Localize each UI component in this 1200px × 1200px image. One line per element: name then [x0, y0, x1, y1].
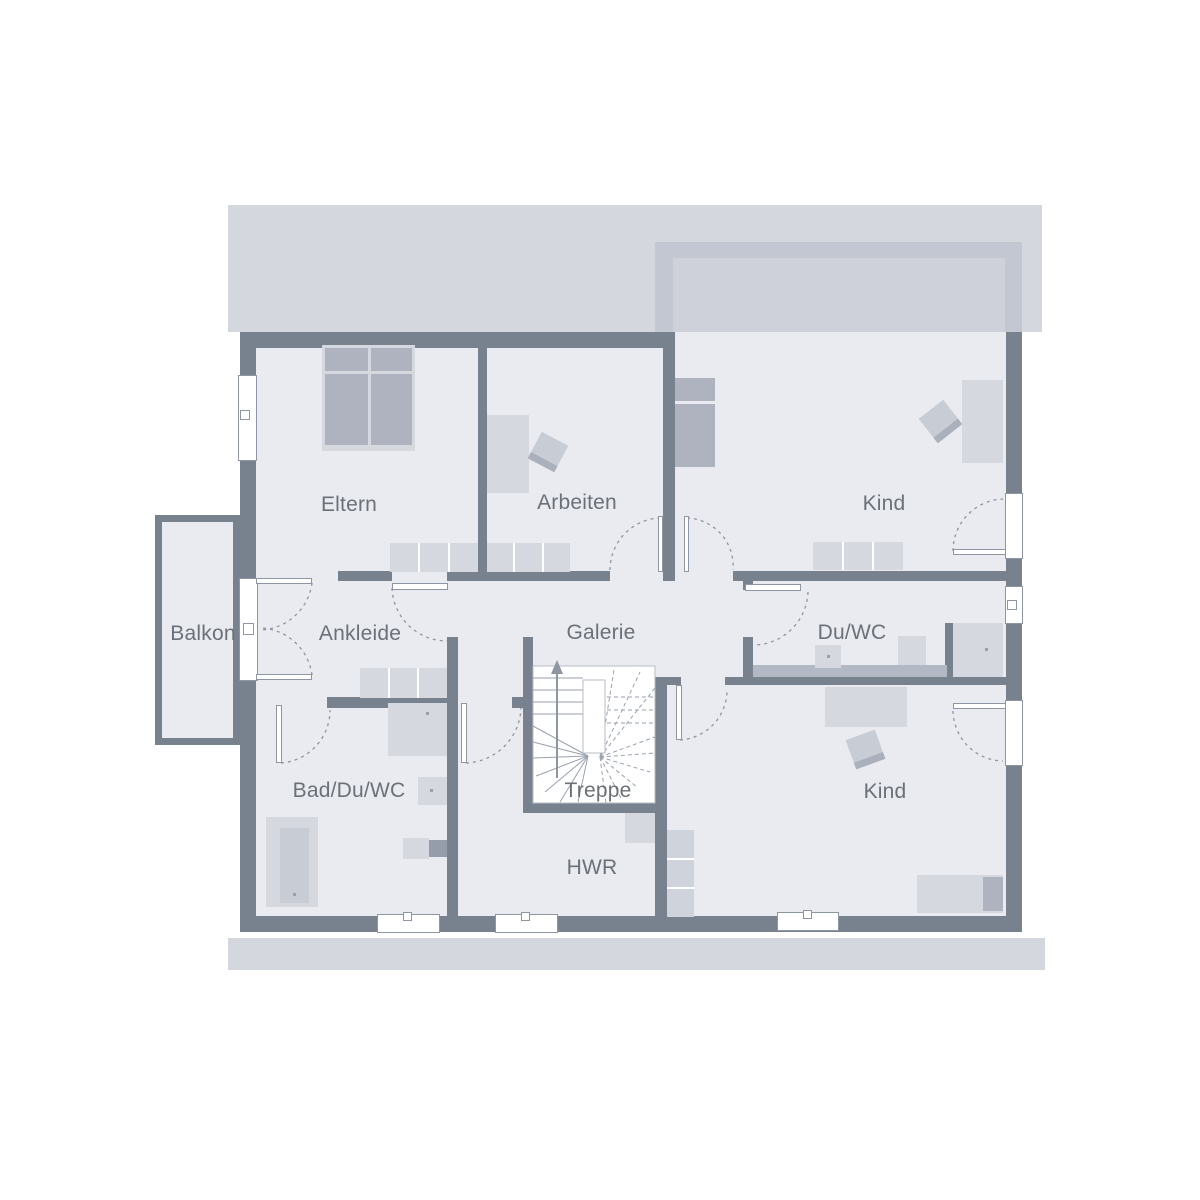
- room-label-hwr: HWR: [567, 856, 618, 880]
- door-leaf-hwr: [461, 703, 467, 763]
- shower-drain: [426, 712, 429, 715]
- bed-mattress: [371, 374, 412, 445]
- sideboard-arbeiten: [487, 543, 570, 572]
- cabinet-hwr: [625, 813, 655, 843]
- bed-mattress: [325, 374, 368, 445]
- wall-duwc-west: [743, 637, 753, 677]
- door-leaf-eltern-ankleide: [392, 583, 448, 590]
- toilet-duwc: [898, 636, 926, 665]
- room-label-arbeiten: Arbeiten: [537, 491, 617, 515]
- room-label-ankleide: Ankleide: [319, 622, 401, 646]
- shower-bad: [388, 703, 447, 756]
- bed-pillow: [371, 348, 412, 371]
- wall-eltern-ankleide-right: [447, 571, 610, 581]
- bed-pillow: [983, 877, 1003, 911]
- wall-eltern-ankleide-left: [338, 571, 392, 581]
- wall-stair-east-hwr-kind: [655, 677, 667, 917]
- shower-drain: [985, 648, 988, 651]
- wall-eltern-arbeiten: [478, 348, 487, 571]
- window-handle: [1007, 600, 1017, 610]
- desk-kind-unten: [825, 687, 907, 727]
- wall-stair-northeast-stub: [667, 677, 681, 685]
- room-label-treppe: Treppe: [565, 779, 632, 803]
- roof-open-ceiling-patch: [672, 332, 1006, 348]
- window-handle: [803, 910, 812, 919]
- room-label-duwc: Du/WC: [818, 621, 887, 645]
- wardrobe-kind-oben: [675, 404, 715, 467]
- window-leaf-kind-unten: [953, 703, 1006, 709]
- balcony-door-handle: [243, 623, 254, 635]
- window-kind-oben-east: [1005, 493, 1023, 559]
- washbasin-drain: [827, 655, 830, 658]
- door-leaf-kind-oben: [684, 516, 689, 572]
- desk-kind-oben: [962, 380, 1003, 463]
- desk-arbeiten: [487, 415, 529, 493]
- bed-pillow: [325, 348, 368, 371]
- window-leaf-kind-oben: [953, 549, 1006, 555]
- wall-bad-east: [447, 708, 458, 916]
- duwc-counter: [753, 665, 947, 677]
- window-handle: [521, 912, 530, 921]
- floor-plan: Eltern Arbeiten Kind Balkon Ankleide Gal…: [0, 0, 1200, 1200]
- bathtub-drain: [293, 893, 296, 896]
- bathtub-inner: [280, 828, 309, 903]
- door-leaf-bad: [276, 705, 282, 763]
- window-kind-unten-east: [1005, 700, 1023, 766]
- toilet-bad: [403, 838, 429, 859]
- room-label-eltern: Eltern: [321, 493, 377, 517]
- room-label-balkon: Balkon: [170, 622, 235, 646]
- sideboard-kind-oben: [813, 542, 903, 570]
- balcony-door-leaf-upper: [256, 578, 312, 584]
- room-label-kind-oben: Kind: [863, 492, 906, 516]
- wall-stair-west: [523, 637, 533, 813]
- door-leaf-duwc: [745, 584, 801, 591]
- room-label-kind-unten: Kind: [864, 780, 907, 804]
- balcony-door-leaf-lower: [256, 674, 312, 680]
- wardrobe-kind-unten: [667, 830, 694, 917]
- window-handle: [240, 410, 250, 420]
- ground-band-bottom: [228, 938, 1045, 970]
- wardrobe-ankleide: [360, 668, 447, 698]
- door-leaf-arbeiten: [658, 516, 663, 572]
- room-label-galerie: Galerie: [566, 621, 635, 645]
- wall-duwc-south: [725, 677, 1007, 685]
- wall-stair-south: [523, 802, 667, 813]
- wardrobe-kind-oben: [675, 378, 715, 401]
- wall-arbeiten-kind: [663, 332, 675, 581]
- shower-duwc: [953, 623, 1003, 677]
- wall-galerie-north-right: [733, 571, 1007, 581]
- sideboard-eltern: [390, 543, 478, 572]
- roof-dormer-inner: [673, 258, 1005, 332]
- toilet-tank: [429, 840, 447, 857]
- door-leaf-kind-unten: [676, 685, 682, 740]
- window-handle: [403, 912, 412, 921]
- washbasin-drain: [430, 789, 433, 792]
- room-label-bad: Bad/Du/WC: [293, 779, 406, 803]
